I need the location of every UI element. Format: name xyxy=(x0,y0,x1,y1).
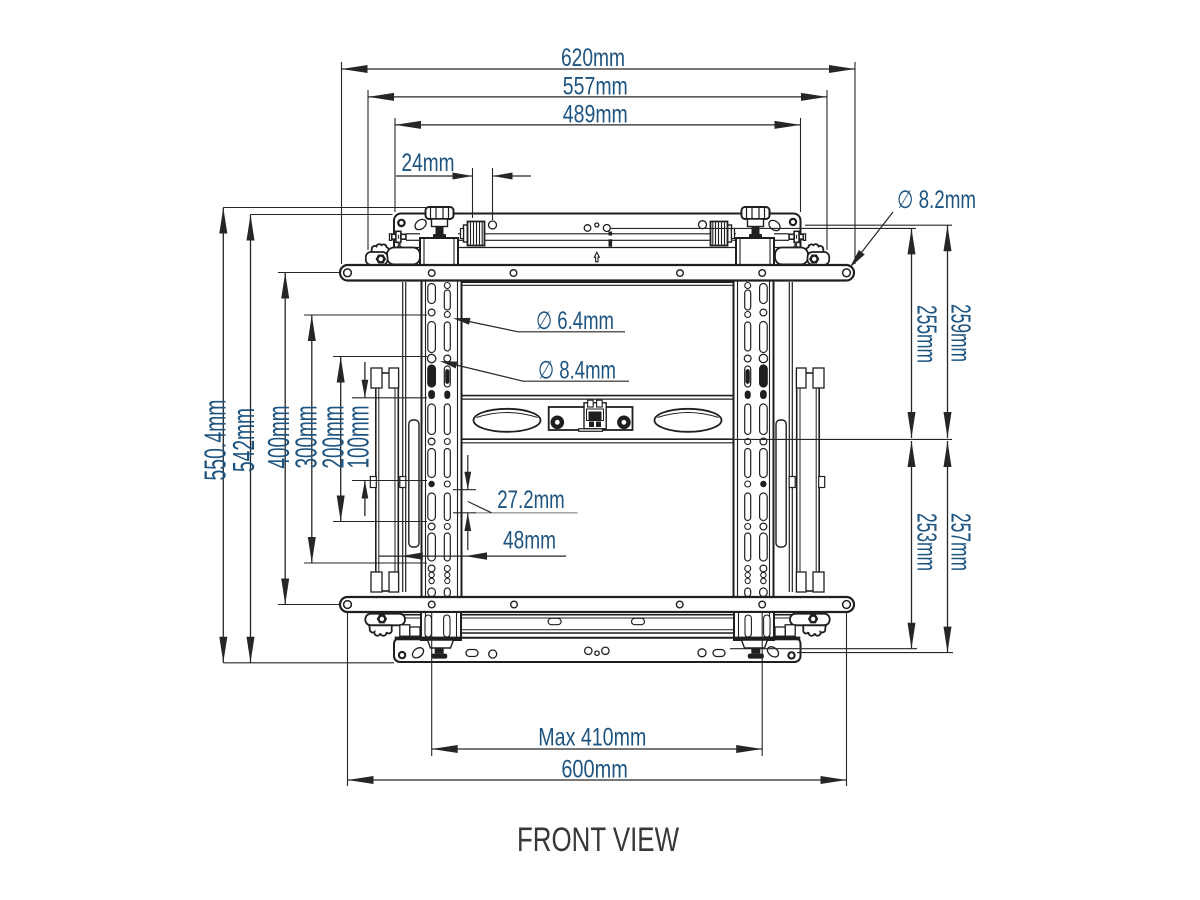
svg-text:259mm: 259mm xyxy=(946,304,977,362)
svg-text:∅ 6.4mm: ∅ 6.4mm xyxy=(536,307,614,335)
svg-text:557mm: 557mm xyxy=(563,73,628,101)
svg-text:257mm: 257mm xyxy=(946,513,977,571)
svg-text:∅ 8.2mm: ∅ 8.2mm xyxy=(897,186,976,214)
svg-text:100mm: 100mm xyxy=(341,406,376,469)
svg-text:600mm: 600mm xyxy=(561,756,628,784)
svg-text:24mm: 24mm xyxy=(402,149,455,177)
svg-text:∅ 8.4mm: ∅ 8.4mm xyxy=(538,357,616,385)
svg-text:27.2mm: 27.2mm xyxy=(497,486,565,514)
svg-text:48mm: 48mm xyxy=(503,527,556,555)
svg-text:620mm: 620mm xyxy=(561,44,625,72)
svg-text:255mm: 255mm xyxy=(912,305,943,363)
svg-text:489mm: 489mm xyxy=(563,101,628,129)
svg-text:253mm: 253mm xyxy=(912,513,943,571)
svg-text:Max 410mm: Max 410mm xyxy=(538,724,646,752)
svg-text:542mm: 542mm xyxy=(226,408,261,472)
svg-text:FRONT VIEW: FRONT VIEW xyxy=(517,821,679,859)
